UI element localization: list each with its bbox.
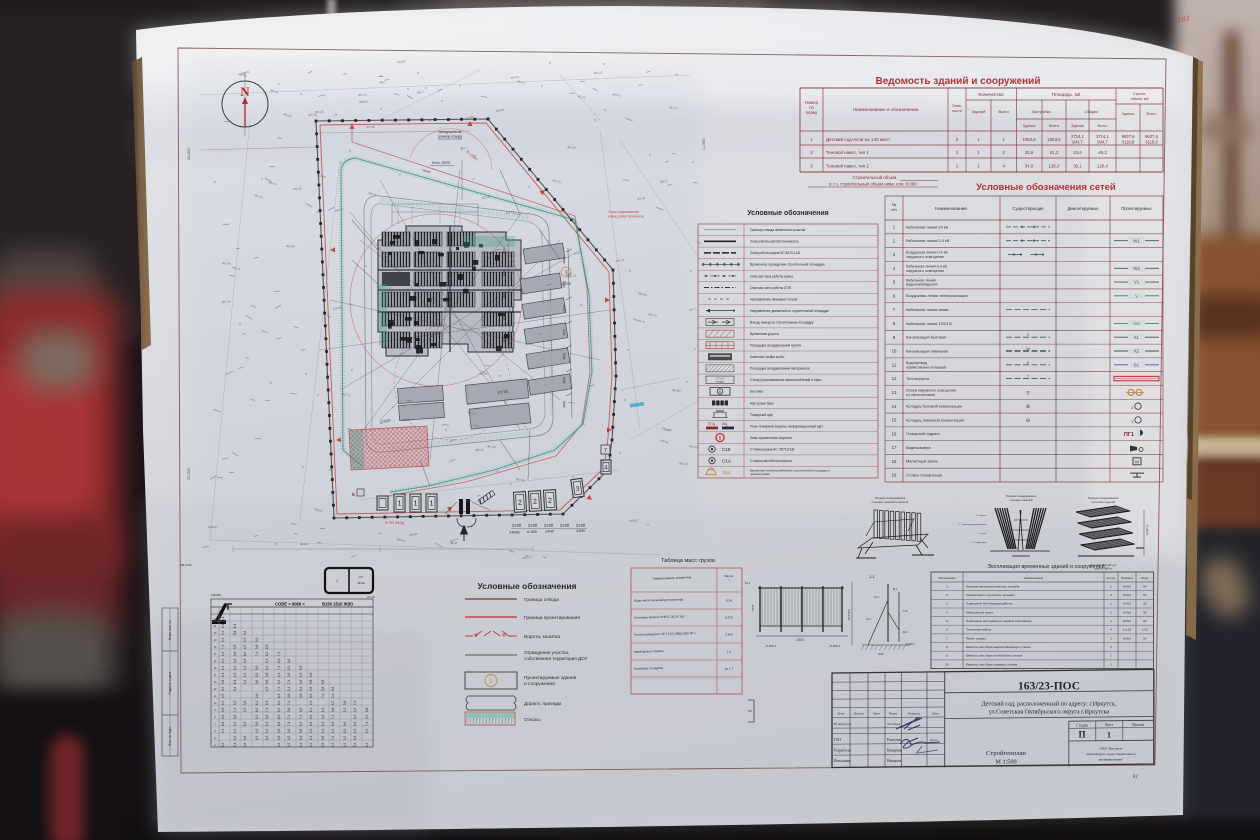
svg-text:по месту: по месту [1146, 524, 1149, 535]
svg-text:4,5: 4,5 [309, 715, 313, 720]
svg-text:Условные обозначения: Условные обозначения [747, 209, 829, 217]
svg-text:8,2: 8,2 [265, 652, 269, 657]
svg-text:4,5: 4,5 [265, 687, 269, 692]
svg-text:Стенд грузозахватных приспособ: Стенд грузозахватных приспособлений и та… [750, 378, 822, 382]
svg-text:6,1: 6,1 [277, 694, 281, 699]
svg-text:34,0: 34,0 [1025, 164, 1034, 169]
svg-text:10.1: 10.1 [874, 595, 880, 599]
svg-text:Кж: Кж [1026, 347, 1031, 351]
svg-text:4,5: 4,5 [299, 673, 303, 678]
svg-text:5,2: 5,2 [309, 729, 313, 734]
svg-text:4,5: 4,5 [243, 680, 247, 685]
svg-text:1х1,22: 1х1,22 [1123, 628, 1132, 632]
svg-text:4000: 4000 [502, 313, 506, 320]
svg-text:2: 2 [518, 499, 522, 506]
svg-text:136,0: 136,0 [1049, 164, 1061, 169]
svg-text:Ворота, калитка: Ворота, калитка [524, 634, 560, 640]
svg-text:Разработал: Разработал [834, 749, 851, 753]
svg-text:1: 1 [414, 501, 418, 508]
svg-text:Граница проектирования: Граница проектирования [524, 615, 580, 621]
svg-text:28,0850: 28,0850 [187, 148, 191, 160]
svg-text:2,4: 2,4 [321, 729, 325, 734]
svg-text:№док: №док [889, 712, 898, 716]
svg-text:Всего: Всего [1049, 124, 1059, 128]
svg-text:к 0°: к 0° [359, 575, 364, 579]
svg-text:стеновых панелей: стеновых панелей [1010, 498, 1033, 502]
svg-text:Кгсм, Ø300: Кгсм, Ø300 [432, 161, 450, 165]
svg-text:видеонаблюдения: видеонаблюдения [906, 283, 937, 287]
svg-text:стеновых панелей в кассетах: стеновых панелей в кассетах [872, 500, 909, 504]
svg-text:5,2: 5,2 [299, 722, 303, 727]
svg-text:Всего: Всего [1098, 124, 1108, 128]
svg-text:5,2: 5,2 [277, 680, 281, 685]
svg-text:и сооружения: и сооружения [524, 682, 555, 687]
svg-text:Демонтируемые: Демонтируемые [1067, 206, 1099, 211]
svg-text:4,5: 4,5 [353, 729, 357, 734]
svg-text:9,6: 9,6 [331, 708, 335, 713]
svg-text:9,6: 9,6 [321, 680, 325, 685]
svg-text:9,6: 9,6 [243, 743, 247, 748]
svg-text:М-2: М-2 [903, 630, 908, 634]
svg-text:К2: К2 [1134, 349, 1140, 354]
svg-text:8,2: 8,2 [277, 715, 281, 720]
svg-text:Мусорные баки: Мусорные баки [750, 401, 774, 405]
svg-text:3,8: 3,8 [309, 680, 313, 685]
svg-text:1,0: 1,0 [727, 650, 732, 654]
svg-text:5,2: 5,2 [353, 736, 357, 741]
svg-text:Детский сад, расположенный по: Детский сад, расположенный по адресу: г.… [982, 701, 1117, 708]
svg-text:30,1: 30,1 [1073, 164, 1082, 169]
svg-text:5,2: 5,2 [343, 708, 347, 713]
svg-text:2 - прокладки деревянные: 2 - прокладки деревянные [959, 524, 987, 526]
svg-text:6,1: 6,1 [221, 673, 225, 678]
svg-text:1: 1 [398, 501, 402, 508]
svg-text:09.23: 09.23 [930, 738, 938, 742]
svg-text:Канализация ливневая: Канализация ливневая [906, 348, 948, 353]
svg-text:461.23: 461.23 [475, 448, 484, 452]
svg-text:6,275: 6,275 [725, 616, 733, 620]
svg-text:3,8: 3,8 [233, 631, 237, 636]
svg-text:8,2: 8,2 [255, 673, 259, 678]
svg-text:Откосы: Откосы [524, 717, 541, 723]
svg-text:Помещение для хранения и выдач: Помещение для хранения и выдачи спецодеж… [966, 619, 1033, 623]
svg-text:Медицинский пункт: Медицинский пункт [966, 610, 994, 614]
svg-text:4000: 4000 [502, 269, 506, 276]
svg-text:1,13900: 1,13900 [702, 138, 706, 150]
svg-text:18: 18 [1143, 593, 1147, 597]
svg-text:4,5: 4,5 [321, 743, 325, 748]
svg-text:проектирования": проектирования" [1099, 758, 1124, 762]
svg-text:Бытовка: Бытовка [750, 390, 763, 394]
svg-text:8,2: 8,2 [265, 736, 269, 741]
svg-text:4,5: 4,5 [353, 708, 357, 713]
svg-text:ЖБ(96): ЖБ(96) [211, 593, 221, 597]
svg-text:Проектируемые: Проектируемые [1121, 206, 1152, 211]
svg-text:Воздушная линия телефонизации: Воздушная линия телефонизации [906, 293, 968, 298]
svg-text:2: 2 [956, 137, 959, 142]
svg-text:7,4: 7,4 [287, 715, 291, 720]
svg-text:9,6: 9,6 [255, 694, 259, 699]
svg-text:плану: плану [806, 110, 818, 115]
svg-text:1053,6: 1053,6 [1047, 137, 1061, 142]
svg-text:2,4: 2,4 [221, 659, 225, 664]
svg-text:1 - панель: 1 - панель [976, 515, 987, 517]
svg-text:46.02: 46.02 [300, 542, 308, 546]
svg-text:4,5: 4,5 [243, 708, 247, 713]
svg-text:8,2: 8,2 [233, 687, 237, 692]
svg-text:4500: 4500 [562, 329, 566, 337]
svg-text:6,1: 6,1 [233, 624, 237, 629]
svg-text:4,5: 4,5 [221, 701, 225, 706]
svg-text:18: 18 [1143, 584, 1147, 588]
svg-text:4500: 4500 [562, 257, 566, 265]
svg-text:3118,8: 3118,8 [1122, 140, 1135, 145]
svg-text:8,2: 8,2 [243, 652, 247, 657]
svg-text:904,7: 904,7 [1097, 140, 1108, 145]
svg-text:4500: 4500 [562, 353, 566, 361]
svg-text:9,6: 9,6 [331, 687, 335, 692]
svg-text:Опасная зона работы ЛЭП: Опасная зона работы ЛЭП [750, 286, 792, 290]
svg-text:М 1:500: М 1:500 [995, 759, 1016, 766]
svg-text:3 - упор: 3 - упор [978, 533, 987, 535]
svg-text:17: 17 [892, 445, 897, 450]
svg-text:14: 14 [892, 404, 897, 409]
svg-text:455.38: 455.38 [366, 125, 375, 129]
svg-text:Стоянка автобетононасоса: Стоянка автобетононасоса [750, 459, 792, 463]
svg-text:8,2: 8,2 [365, 743, 369, 748]
svg-text:9,6: 9,6 [353, 722, 357, 727]
svg-text:5 ПВ 340д: 5 ПВ 340д [385, 520, 405, 525]
svg-text:9,6: 9,6 [277, 722, 281, 727]
svg-text:V1: V1 [1134, 280, 1140, 285]
svg-text:3,8: 3,8 [233, 715, 237, 720]
svg-text:6,1: 6,1 [221, 617, 225, 622]
svg-text:7,4: 7,4 [265, 708, 269, 713]
svg-text:ПГ1: ПГ1 [1124, 432, 1134, 438]
svg-text:21.26: 21.26 [367, 595, 375, 599]
svg-text:и тары: и тары [716, 381, 724, 384]
svg-text:Емкость для сбора нефтесодержа: Емкость для сбора нефтесодержащих стоков [966, 645, 1031, 649]
svg-text:Кабельная линия: Кабельная линия [906, 278, 936, 282]
svg-text:5,2: 5,2 [221, 687, 225, 692]
svg-text:120,4: 120,4 [1097, 164, 1109, 169]
svg-text:6,1: 6,1 [321, 708, 325, 713]
svg-text:Емкость для сбора хоз-бытовых: Емкость для сбора хоз-бытовых стоков [966, 654, 1023, 658]
svg-text:18: 18 [1143, 619, 1147, 623]
svg-text:Воздушная линия 0,4 кВ: Воздушная линия 0,4 кВ [906, 251, 948, 255]
svg-text:7,4: 7,4 [299, 715, 303, 720]
svg-text:Зданий: Зданий [972, 109, 986, 114]
svg-text:1: 1 [977, 137, 980, 142]
svg-text:С1А: С1А [722, 459, 732, 464]
svg-text:7,4: 7,4 [287, 680, 291, 685]
svg-text:4: 4 [1002, 164, 1005, 169]
svg-text:А2: А2 [1132, 774, 1137, 779]
svg-text:Эпр: Эпр [722, 470, 731, 475]
svg-text:Строит.: Строит. [1133, 92, 1146, 96]
svg-text:Канализация бытовая: Канализация бытовая [906, 335, 946, 340]
svg-text:ООО "Институт: ООО "Институт [1099, 747, 1123, 751]
svg-text:Б-250-1: Б-250-1 [906, 642, 916, 646]
svg-text:5,2: 5,2 [353, 715, 357, 720]
svg-text:Б-250-1: Б-250-1 [766, 644, 776, 648]
svg-text:Площадка складирования грунта: Площадка складирования грунта [750, 344, 801, 348]
svg-text:9637,6: 9637,6 [1122, 134, 1135, 139]
svg-text:ул.Советская Октябрьского окру: ул.Советская Октябрьского округа г.Иркут… [989, 709, 1110, 716]
svg-text:Емкость для сбора ливневых сто: Емкость для сбора ливневых стоков [966, 662, 1018, 666]
svg-text:458.90: 458.90 [359, 100, 368, 104]
svg-text:4,5: 4,5 [299, 743, 303, 748]
svg-text:12: 12 [892, 376, 897, 381]
svg-text:Контора начальника участка, пр: Контора начальника участка, прораба [966, 584, 1020, 588]
svg-text:Лист: Лист [1105, 723, 1113, 727]
svg-text:N: N [240, 84, 250, 99]
svg-text:5,2: 5,2 [331, 729, 335, 734]
svg-text:Кол.уч: Кол.уч [854, 712, 864, 716]
svg-text:Этаж-: Этаж- [952, 104, 963, 108]
svg-text:Всего: Всего [998, 109, 1009, 114]
svg-text:4500: 4500 [562, 305, 566, 313]
svg-text:3,8: 3,8 [265, 715, 269, 720]
svg-text:Въезд, выезд на строительные п: Въезд, выезд на строительные площадку [750, 320, 814, 324]
svg-text:Инв. № подл.: Инв. № подл. [168, 726, 172, 746]
svg-text:Стоянка крана КС -55713-1В: Стоянка крана КС -55713-1В [750, 447, 795, 451]
svg-text:2100: 2100 [512, 523, 522, 528]
svg-text:Наименование: Наименование [1024, 576, 1044, 580]
svg-text:462.85: 462.85 [402, 418, 411, 422]
svg-text:5,2: 5,2 [365, 715, 369, 720]
svg-text:6х3х3: 6х3х3 [1123, 593, 1131, 597]
svg-text:W1: W1 [1133, 238, 1140, 243]
svg-text:1: 1 [336, 579, 338, 583]
svg-text:Стойка телефонная: Стойка телефонная [906, 473, 942, 478]
svg-text:2,4: 2,4 [309, 736, 313, 741]
svg-text:7,4: 7,4 [255, 652, 259, 657]
svg-text:В150 1510 Ж(К): В150 1510 Ж(К) [322, 602, 353, 607]
svg-text:3,8: 3,8 [255, 666, 259, 671]
svg-text:3,8: 3,8 [299, 666, 303, 671]
svg-text:Листов: Листов [1132, 723, 1144, 727]
svg-text:W3: W3 [1133, 321, 1140, 326]
svg-text:Направление движения по строит: Направление движения по строительной пло… [750, 309, 829, 313]
svg-text:4,5: 4,5 [331, 743, 335, 748]
svg-text:ИЩ: ИЩ [722, 422, 727, 426]
svg-text:1: 1 [1107, 730, 1111, 739]
svg-text:1-1: 1-1 [869, 574, 876, 579]
svg-text:5,2: 5,2 [277, 708, 281, 713]
svg-text:наружного освещения: наружного освещения [906, 269, 944, 273]
svg-text:9,6: 9,6 [287, 673, 291, 678]
svg-text:архитектурно-градостроительног: архитектурно-градостроительного [1086, 752, 1136, 756]
svg-text:10: 10 [892, 349, 897, 354]
svg-text:Условные обозначения: Условные обозначения [477, 581, 576, 591]
svg-text:1053,6: 1053,6 [1022, 137, 1036, 142]
svg-text:Опора наружного освещения: Опора наружного освещения [906, 389, 956, 393]
svg-text:Граница отвода земельного учас: Граница отвода земельного участка [750, 228, 805, 232]
svg-text:25,0932: 25,0932 [187, 468, 191, 480]
svg-text:8,2: 8,2 [309, 743, 313, 748]
svg-text:Видеокамера: Видеокамера [906, 445, 931, 450]
svg-text:9,6: 9,6 [233, 659, 237, 664]
svg-text:463.17: 463.17 [594, 70, 603, 75]
svg-text:Водопровод: Водопровод [906, 361, 928, 365]
svg-text:Изм: Изм [838, 712, 845, 716]
svg-text:463.17: 463.17 [525, 554, 534, 559]
svg-text:8,2: 8,2 [343, 729, 347, 734]
svg-text:2,4: 2,4 [331, 694, 335, 699]
svg-text:1875 900: 1875 900 [847, 609, 851, 620]
svg-text:Временное ограждение строитель: Временное ограждение строительной площад… [750, 263, 825, 267]
svg-text:Всего: Всего [1147, 112, 1157, 116]
svg-text:2,4: 2,4 [221, 652, 225, 657]
svg-text:Точка подключения: Точка подключения [608, 210, 639, 214]
svg-text:7,4: 7,4 [277, 652, 281, 657]
svg-text:4,5: 4,5 [233, 673, 237, 678]
svg-text:Обозначение: Обозначение [938, 576, 956, 580]
svg-text:4500: 4500 [562, 377, 566, 385]
svg-text:3,8: 3,8 [233, 645, 237, 650]
svg-text:9,6: 9,6 [243, 736, 247, 741]
svg-text:8,2: 8,2 [277, 701, 281, 706]
svg-text:Условные обозначения сетей: Условные обозначения сетей [976, 182, 1116, 193]
svg-text:3,8: 3,8 [277, 729, 281, 734]
svg-text:3,8: 3,8 [321, 687, 325, 692]
svg-text:1400х: 1400х [509, 530, 521, 535]
svg-text:⚲: ⚲ [1026, 390, 1030, 396]
svg-text:2,4: 2,4 [265, 645, 269, 650]
svg-text:183: 183 [1177, 15, 1190, 24]
svg-text:1: 1 [430, 501, 434, 508]
svg-text:Некорова: Некорова [887, 759, 902, 763]
svg-text:1: 1 [956, 150, 959, 155]
svg-text:6,1: 6,1 [255, 701, 259, 706]
svg-text:4,5: 4,5 [255, 736, 259, 741]
svg-text:Кабельная линия 0,4 кВ: Кабельная линия 0,4 кВ [906, 264, 947, 268]
svg-text:6,1: 6,1 [221, 666, 225, 671]
svg-text:Строительный объем,: Строительный объем, [852, 175, 897, 180]
svg-text:Знак ограничения скорости: Знак ограничения скорости [750, 436, 792, 440]
svg-text:3,8: 3,8 [243, 701, 247, 706]
svg-text:8,2: 8,2 [255, 708, 259, 713]
svg-text:6,1: 6,1 [309, 708, 313, 713]
svg-text:Кабельная линия 10 кВ: Кабельная линия 10 кВ [906, 224, 949, 229]
svg-text:5,2: 5,2 [243, 638, 247, 643]
svg-text:3,8: 3,8 [343, 701, 347, 706]
svg-text:2,4: 2,4 [233, 729, 237, 734]
svg-text:К: К [1027, 333, 1029, 337]
svg-text:18: 18 [1143, 602, 1147, 606]
svg-text:Наименование: Наименование [935, 206, 967, 211]
svg-text:со светильником: со светильником [906, 393, 935, 397]
svg-text:8,2: 8,2 [331, 701, 335, 706]
svg-text:8,2: 8,2 [309, 694, 313, 699]
svg-text:Исполнено: Исполнено [834, 759, 851, 763]
svg-text:4,5: 4,5 [299, 708, 303, 713]
svg-text:25,6: 25,6 [1025, 150, 1034, 155]
svg-text:Гардеробная с сушилкой и душев: Гардеробная с сушилкой и душевой [966, 593, 1015, 597]
svg-text:6х3х3: 6х3х3 [1123, 584, 1131, 588]
svg-text:5,2: 5,2 [299, 687, 303, 692]
svg-text:7,4: 7,4 [277, 666, 281, 671]
svg-text:462.40: 462.40 [286, 244, 295, 248]
svg-text:2714,1: 2714,1 [1096, 134, 1109, 139]
svg-text:Порядок складирования: Порядок складирования [1088, 496, 1119, 500]
svg-text:Порядок складирования: Порядок складирования [875, 496, 906, 500]
svg-text:наружного освещения: наружного освещения [906, 255, 944, 259]
svg-text:2714,1: 2714,1 [1071, 134, 1084, 139]
svg-text:1400: 1400 [545, 529, 555, 534]
svg-text:к инж.сетям теплосети: к инж.сетям теплосети [608, 215, 644, 219]
svg-text:4,5: 4,5 [309, 722, 313, 727]
svg-text:План пожарной защиты, информац: План пожарной защиты, информационный щит [750, 424, 823, 428]
svg-text:М-1: М-1 [745, 581, 750, 585]
svg-text:6,1: 6,1 [299, 736, 303, 741]
svg-text:М-1: М-1 [893, 587, 898, 591]
svg-text:Распутин: Распутин [887, 738, 901, 742]
svg-text:6,1: 6,1 [265, 659, 269, 664]
svg-text:Граница отвода: Граница отвода [524, 597, 559, 603]
svg-text:458.90: 458.90 [208, 525, 217, 529]
svg-text:2,4: 2,4 [287, 687, 291, 692]
svg-text:6,1: 6,1 [233, 680, 237, 685]
svg-text:С1К: С1К [722, 447, 731, 452]
svg-text:4,5: 4,5 [287, 666, 291, 671]
svg-text:Подпись и дата: Подпись и дата [168, 671, 172, 694]
svg-text:9,6: 9,6 [221, 680, 225, 685]
svg-text:5,2: 5,2 [243, 673, 247, 678]
svg-text:W4: W4 [1133, 266, 1140, 271]
svg-text:462.40: 462.40 [222, 261, 231, 266]
svg-text:Стройгенплан: Стройгенплан [986, 750, 1026, 757]
svg-text:CODE > 0066 <: CODE > 0066 < [275, 602, 305, 607]
svg-text:Теневой навес, тип 2: Теневой навес, тип 2 [826, 164, 869, 169]
svg-text:3,8: 3,8 [299, 729, 303, 734]
svg-text:П: П [1078, 730, 1085, 740]
svg-text:9,6: 9,6 [299, 680, 303, 685]
svg-text:ПВ-ООК: ПВ-ООК [180, 563, 192, 567]
svg-text:5,2: 5,2 [265, 729, 269, 734]
svg-text:Проектируемые здания: Проектируемые здания [524, 675, 577, 681]
svg-text:Кабельная линия 0,4 кВ: Кабельная линия 0,4 кВ [906, 238, 950, 243]
svg-text:5,2: 5,2 [233, 701, 237, 706]
svg-text:Пункт охраны: Пункт охраны [966, 636, 987, 640]
svg-text:1400: 1400 [576, 528, 586, 533]
svg-text:1875: 1875 [751, 604, 755, 611]
svg-text:6х3х3: 6х3х3 [1123, 636, 1131, 640]
svg-text:4500: 4500 [562, 281, 566, 289]
svg-text:Комплекс мойки колёс: Комплекс мойки колёс [750, 355, 785, 359]
svg-text:⊕: ⊕ [1026, 404, 1031, 410]
svg-text:4,5: 4,5 [255, 729, 259, 734]
svg-text:3,8: 3,8 [331, 722, 335, 727]
svg-text:Застройки: Застройки [1031, 109, 1050, 114]
svg-text:Лист: Лист [873, 712, 881, 716]
svg-text:13: 13 [892, 390, 897, 395]
svg-text:ПГЩ: ПГЩ [708, 422, 715, 426]
svg-text:4500: 4500 [562, 401, 566, 409]
svg-text:Опасная зона работы крана: Опасная зона работы крана [750, 274, 793, 278]
svg-text:10: 10 [945, 662, 949, 666]
svg-text:2500: 2500 [796, 638, 803, 642]
svg-text:1: 1 [956, 164, 959, 169]
svg-text:В1: В1 [1134, 362, 1140, 367]
svg-text:Временная дорога: Временная дорога [750, 332, 779, 336]
svg-text:462.40: 462.40 [567, 145, 576, 150]
svg-text:6,1: 6,1 [233, 743, 237, 748]
svg-text:9,6: 9,6 [321, 736, 325, 741]
svg-text:4,5: 4,5 [243, 666, 247, 671]
svg-text:4,5: 4,5 [343, 743, 347, 748]
